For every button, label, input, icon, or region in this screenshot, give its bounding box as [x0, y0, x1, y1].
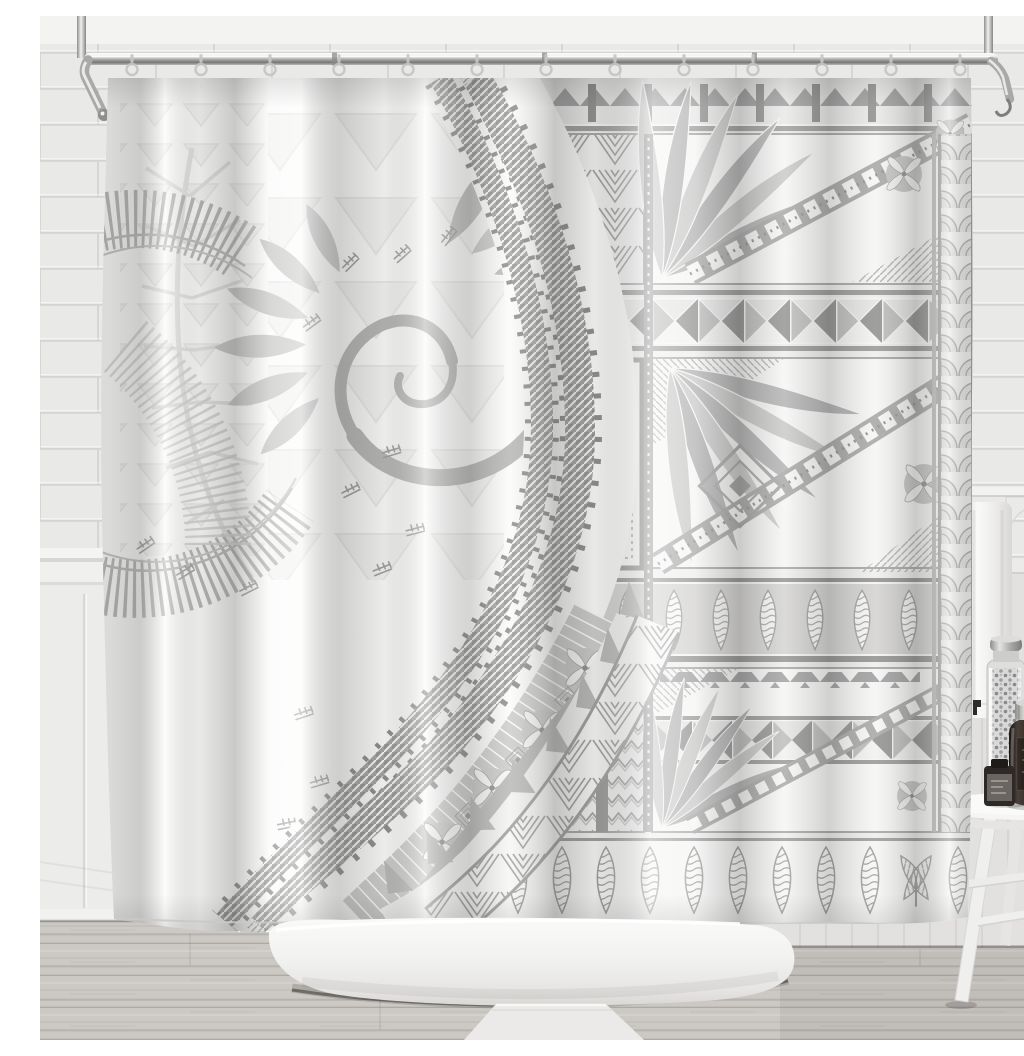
amber-jar-label	[1017, 738, 1024, 790]
rod-bar	[84, 53, 998, 65]
ceiling	[40, 16, 1024, 46]
shower-curtain	[40, 59, 980, 931]
rod-support-left	[77, 16, 86, 58]
bathtub	[269, 918, 795, 1006]
bathroom-scene	[40, 16, 1024, 1040]
small-bottle	[984, 759, 1015, 806]
scene-canvas	[40, 16, 1024, 1040]
curtain-folds	[95, 71, 980, 931]
